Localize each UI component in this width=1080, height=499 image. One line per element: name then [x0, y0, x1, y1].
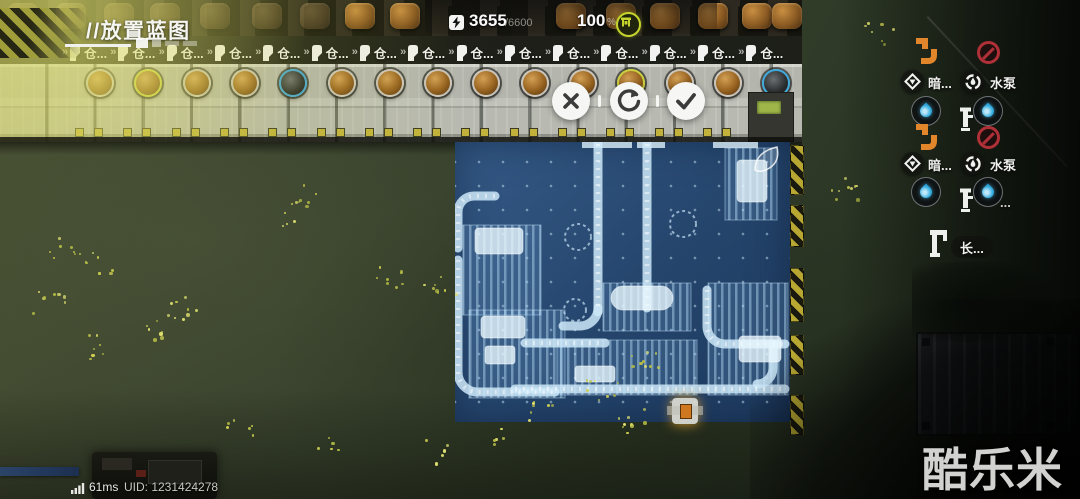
flower-dot — [502, 437, 505, 440]
warehouse-label: 仓... — [567, 43, 590, 62]
bolt-icon — [1046, 338, 1054, 346]
chevron-icon: » — [207, 46, 211, 58]
flower-dot — [379, 266, 381, 268]
chevron-icon: » — [497, 46, 501, 58]
flower-dot — [79, 253, 82, 256]
flower-dot — [146, 325, 148, 327]
warehouse-door-icon — [213, 43, 227, 62]
progress-bar — [0, 467, 79, 476]
flower-dot — [291, 203, 293, 205]
flower-dot — [423, 284, 425, 286]
flower-dot — [446, 444, 449, 447]
machine-core — [680, 404, 692, 419]
flower-dot — [252, 434, 255, 437]
power-port — [529, 128, 538, 137]
hazard-border — [790, 205, 804, 247]
flower-dot — [443, 449, 446, 452]
pump-icon[interactable] — [961, 152, 984, 175]
blueprint-area[interactable] — [455, 140, 790, 422]
forbidden-icon — [977, 126, 1000, 149]
rotate-icon — [610, 82, 648, 120]
warehouse-unit[interactable]: »仓... — [738, 40, 786, 64]
hazard-border — [790, 395, 804, 435]
uid-label: UID: 1231424278 — [124, 480, 218, 494]
flower-dot — [613, 394, 616, 397]
flower-dot — [626, 432, 629, 435]
flower-dot — [551, 404, 554, 407]
warehouse-door-icon — [358, 43, 372, 62]
flower-dot — [856, 198, 860, 202]
flower-dot — [299, 199, 302, 202]
legend-dash-icon — [165, 41, 179, 46]
power-port — [317, 128, 326, 137]
percent-sign: % — [607, 17, 616, 28]
flower-dot — [630, 424, 633, 427]
flower-dot — [53, 257, 55, 259]
flower-dot — [184, 296, 187, 299]
flower-dot — [153, 338, 157, 342]
warehouse-unit[interactable]: »仓... — [690, 40, 738, 64]
flower-dot — [226, 426, 229, 429]
flower-dot — [425, 439, 428, 442]
flower-dot — [386, 282, 389, 285]
flower-dot — [376, 277, 378, 279]
flower-dot — [598, 399, 600, 401]
power-port — [287, 128, 296, 137]
material-circle[interactable] — [328, 69, 356, 97]
blueprint-drawing — [455, 140, 790, 422]
flower-dot — [440, 276, 442, 278]
green-screen — [757, 101, 781, 114]
chevron-icon: » — [304, 46, 308, 58]
building-icon-dark[interactable] — [901, 70, 924, 93]
chevron-icon: » — [642, 46, 646, 58]
flower-dot — [248, 427, 251, 430]
flower-dot — [174, 317, 176, 319]
flower-dot — [85, 262, 87, 264]
power-port — [674, 128, 683, 137]
flower-dot — [227, 422, 230, 425]
flower-dot — [432, 287, 435, 290]
faucet-icon — [958, 186, 974, 213]
button-divider — [656, 95, 659, 107]
flower-dot — [655, 352, 657, 354]
rotate-button[interactable] — [610, 82, 648, 120]
warehouse-label: 仓... — [422, 43, 445, 62]
power-port — [365, 128, 374, 137]
flower-dot — [156, 320, 158, 322]
flower-dot — [847, 186, 850, 189]
warehouse-door-icon — [648, 43, 662, 62]
chevron-icon: » — [255, 46, 259, 58]
warehouse-label: 仓... — [760, 43, 783, 62]
flower-dot — [307, 201, 310, 204]
power-port — [413, 128, 422, 137]
flower-dot — [187, 308, 189, 310]
flower-dot — [58, 237, 61, 240]
warehouse-unit[interactable]: »仓... — [207, 40, 255, 64]
chevron-icon: » — [738, 46, 742, 58]
flower-dot — [57, 293, 60, 296]
flower-dot — [63, 295, 67, 299]
hazard-border — [790, 335, 804, 375]
warehouse-door-icon — [744, 43, 758, 62]
flower-dot — [441, 454, 444, 457]
flower-dot — [444, 289, 447, 292]
flower-dot — [455, 293, 458, 296]
power-port — [191, 128, 200, 137]
flower-dot — [530, 411, 533, 414]
flower-dot — [835, 198, 838, 201]
material-circle[interactable] — [521, 69, 549, 97]
power-port — [655, 128, 664, 137]
flower-dot — [102, 353, 104, 355]
flower-dot — [838, 190, 840, 192]
power-port — [336, 128, 345, 137]
capacity-percent: 100 — [577, 11, 605, 31]
energy-icon — [449, 15, 464, 30]
flower-dot — [59, 245, 61, 247]
material-circle[interactable] — [279, 69, 307, 97]
ping-label: 61ms — [89, 480, 118, 494]
placed-machine[interactable] — [672, 398, 698, 424]
flower-dot — [315, 193, 318, 196]
flower-dot — [434, 284, 436, 286]
power-port — [75, 128, 84, 137]
warehouse-unit[interactable]: »仓... — [448, 40, 496, 64]
warehouse-label: 仓... — [277, 43, 300, 62]
water-drop-icon[interactable] — [911, 177, 941, 207]
warehouse-unit[interactable]: »仓... — [545, 40, 593, 64]
chevron-icon: » — [545, 46, 549, 58]
flower-dot — [883, 43, 886, 46]
warehouse-unit[interactable]: »仓... — [593, 40, 641, 64]
flower-dot — [43, 296, 46, 299]
flower-dot — [330, 448, 333, 451]
material-circle[interactable] — [376, 69, 404, 97]
forbidden-icon — [977, 41, 1000, 64]
flower-dot — [337, 449, 340, 452]
power-port — [577, 128, 586, 137]
flower-dot — [286, 223, 288, 225]
flower-dot — [92, 252, 94, 254]
building-label: 暗... — [928, 73, 952, 92]
material-circle[interactable] — [714, 69, 742, 97]
warehouse-label: 仓... — [615, 43, 638, 62]
material-circle[interactable] — [183, 69, 211, 97]
energy-current: 3655 — [469, 11, 507, 31]
warning-icon — [912, 122, 938, 152]
warehouse-door-icon — [406, 43, 420, 62]
warehouse-unit[interactable]: »仓... — [400, 40, 448, 64]
flower-dot — [233, 419, 235, 421]
power-port — [123, 128, 132, 137]
chevron-icon: » — [448, 46, 452, 58]
flower-dot — [586, 389, 589, 392]
cancel-button[interactable] — [552, 82, 590, 120]
warehouse-unit[interactable]: »仓... — [497, 40, 545, 64]
chevron-icon: » — [690, 46, 694, 58]
warehouse-door-icon — [696, 43, 710, 62]
legend-box-icon — [152, 40, 161, 47]
power-port — [480, 128, 489, 137]
flower-dot — [32, 312, 35, 315]
hazard-border — [790, 145, 804, 195]
legend-dash-icon — [183, 41, 197, 46]
flower-dot — [547, 404, 550, 407]
signal-icon — [71, 483, 85, 494]
power-port — [384, 128, 393, 137]
flower-dot — [317, 447, 320, 450]
tree-foliage — [912, 262, 1052, 342]
chevron-icon: » — [352, 46, 356, 58]
power-port — [722, 128, 731, 137]
flower-dot — [251, 425, 253, 427]
flower-dot — [623, 423, 626, 426]
flower-dot — [500, 428, 502, 430]
warehouse-unit[interactable]: »仓... — [642, 40, 690, 64]
power-port — [239, 128, 248, 137]
flower-dot — [622, 426, 624, 428]
game-screen: »仓...»仓...»仓...»仓...»仓...»仓...»仓...»仓...… — [0, 0, 1080, 499]
title-underline — [65, 44, 131, 47]
warning-icon — [912, 36, 938, 66]
flower-dot — [88, 334, 91, 337]
flower-dot — [831, 189, 834, 192]
warehouse-unit[interactable]: »仓... — [255, 40, 303, 64]
flower-dot — [182, 318, 186, 322]
energy-max: /6600 — [505, 17, 533, 29]
chevron-icon: » — [593, 46, 597, 58]
pipe-icon[interactable] — [928, 226, 952, 260]
water-drop-icon[interactable] — [973, 96, 1003, 126]
chevron-icon: » — [159, 46, 163, 58]
flower-dot — [303, 184, 306, 187]
capacity-ring-icon — [616, 12, 641, 37]
flower-dot — [493, 443, 496, 446]
flower-dot — [99, 344, 101, 346]
flower-dot — [148, 328, 151, 331]
flower-dot — [395, 286, 398, 289]
warehouse-door-icon — [503, 43, 517, 62]
building-label: 暗... — [928, 155, 952, 174]
power-port — [625, 128, 634, 137]
power-port — [510, 128, 519, 137]
material-circle[interactable] — [424, 69, 452, 97]
warehouse-door-icon — [310, 43, 324, 62]
top-hud: 3655 /6600 100 % — [0, 0, 1080, 40]
flower-dot — [160, 336, 164, 340]
flower-dot — [435, 462, 438, 465]
flower-dot — [643, 421, 647, 425]
pipe-item[interactable]: 长... — [951, 236, 993, 258]
flower-dot — [53, 293, 56, 296]
warehouse-door-icon — [551, 43, 565, 62]
button-divider — [598, 95, 601, 107]
flower-dot — [175, 301, 177, 303]
power-port — [94, 128, 103, 137]
warehouse-door-icon — [261, 43, 275, 62]
warehouse-label: 仓... — [519, 43, 542, 62]
flower-dot — [305, 205, 308, 208]
power-port — [268, 128, 277, 137]
power-port — [461, 128, 470, 137]
flower-dot — [93, 348, 95, 350]
vehicle-light — [136, 470, 146, 477]
flower-dot — [437, 291, 440, 294]
warehouse-door-icon — [455, 43, 469, 62]
flower-dot — [74, 253, 76, 255]
vehicle-detail — [102, 458, 132, 470]
flower-dot — [167, 314, 170, 317]
power-port — [703, 128, 712, 137]
watermark-text: 酷乐米 — [922, 434, 1063, 499]
power-port — [606, 128, 615, 137]
flower-dot — [642, 360, 645, 363]
building-icon-dark[interactable] — [901, 152, 924, 175]
flower-dot — [627, 416, 630, 419]
x-icon — [552, 82, 590, 120]
power-port — [172, 128, 181, 137]
flower-dot — [649, 365, 652, 368]
flower-dot — [589, 380, 592, 383]
power-port — [432, 128, 441, 137]
flower-dot — [850, 187, 853, 190]
flower-dot — [386, 278, 389, 281]
flower-dot — [657, 366, 660, 369]
flower-dot — [109, 272, 112, 275]
flower-dot — [618, 417, 621, 420]
warehouse-label: 仓... — [664, 43, 687, 62]
power-port — [220, 128, 229, 137]
control-building — [748, 92, 794, 142]
pump-icon[interactable] — [961, 70, 984, 93]
flower-dot — [186, 313, 190, 317]
power-port — [142, 128, 151, 137]
flower-dot — [331, 442, 335, 446]
warehouse-label: 仓... — [471, 43, 494, 62]
power-port — [558, 128, 567, 137]
confirm-button[interactable] — [667, 82, 705, 120]
warehouse-label: 仓... — [229, 43, 252, 62]
flower-dot — [284, 212, 286, 214]
warehouse-unit[interactable]: »仓... — [304, 40, 352, 64]
flower-dot — [400, 272, 402, 274]
building-label: 水泵 — [990, 73, 1016, 92]
flower-dot — [493, 439, 496, 442]
flower-dot — [170, 302, 173, 305]
flower-dot — [844, 177, 848, 181]
water-drop-icon[interactable] — [973, 177, 1003, 207]
warehouse-label: 仓... — [712, 43, 735, 62]
hazard-border — [790, 268, 804, 322]
building-label: 水泵 — [990, 155, 1016, 174]
flower-dot — [38, 291, 40, 293]
flower-dot — [91, 354, 94, 357]
flower-dot — [96, 334, 98, 336]
flower-dot — [401, 283, 404, 286]
warehouse-door-icon — [599, 43, 613, 62]
flower-dot — [195, 309, 198, 312]
flower-dot — [328, 437, 330, 439]
flower-dot — [89, 358, 92, 361]
flower-dot — [70, 246, 73, 249]
bolt-icon — [1046, 422, 1054, 430]
bolt-icon — [922, 422, 930, 430]
pipe-label: 长... — [960, 238, 984, 257]
warehouse-label: 仓... — [326, 43, 349, 62]
flower-dot — [631, 365, 634, 368]
warehouse-label: 仓... — [374, 43, 397, 62]
material-circle[interactable] — [86, 69, 114, 97]
flower-dot — [293, 220, 296, 223]
flower-dot — [282, 225, 285, 228]
concrete-platform — [916, 332, 1080, 436]
flower-dot — [49, 251, 51, 253]
material-circle[interactable] — [231, 69, 259, 97]
check-icon — [667, 82, 705, 120]
flower-dot — [881, 40, 883, 42]
flower-dot — [98, 272, 101, 275]
chevron-icon: » — [400, 46, 404, 58]
flower-dot — [64, 301, 67, 304]
bolt-icon — [922, 338, 930, 346]
more-ellipsis: ... — [1000, 195, 1011, 210]
flower-dot — [159, 332, 163, 336]
warehouse-unit[interactable]: »仓... — [352, 40, 400, 64]
flower-dot — [97, 256, 99, 258]
chevron-icon: » — [110, 46, 114, 58]
faucet-icon — [958, 105, 974, 132]
